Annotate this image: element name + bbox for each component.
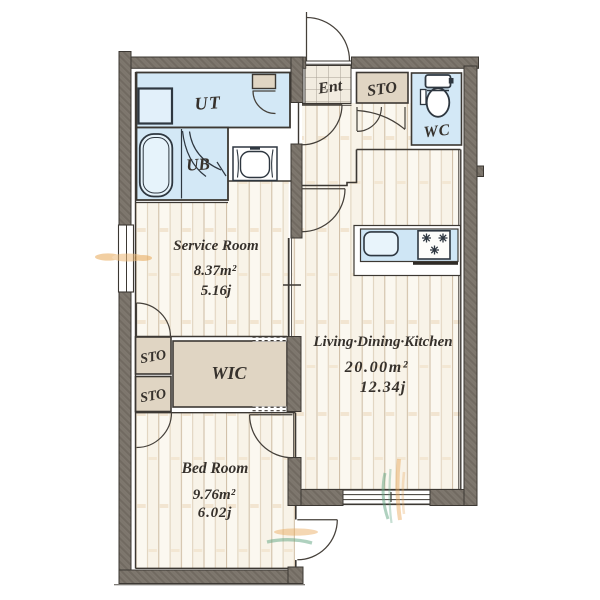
- svg-text:12.34j: 12.34j: [360, 379, 406, 396]
- svg-text:Bed Room: Bed Room: [181, 460, 249, 477]
- svg-text:WIC: WIC: [211, 363, 247, 383]
- svg-text:Ent: Ent: [316, 77, 344, 97]
- svg-text:Service Room: Service Room: [173, 238, 258, 254]
- svg-text:WC: WC: [423, 122, 452, 142]
- svg-text:UT: UT: [194, 92, 222, 114]
- svg-text:8.37m²: 8.37m²: [194, 263, 237, 279]
- svg-text:5.16j: 5.16j: [201, 283, 232, 299]
- svg-text:20.00m²: 20.00m²: [344, 359, 409, 376]
- svg-text:Living·Dining·Kitchen: Living·Dining·Kitchen: [312, 334, 452, 350]
- svg-text:6.02j: 6.02j: [198, 505, 232, 521]
- svg-text:9.76m²: 9.76m²: [193, 487, 236, 503]
- svg-text:UB: UB: [186, 154, 211, 175]
